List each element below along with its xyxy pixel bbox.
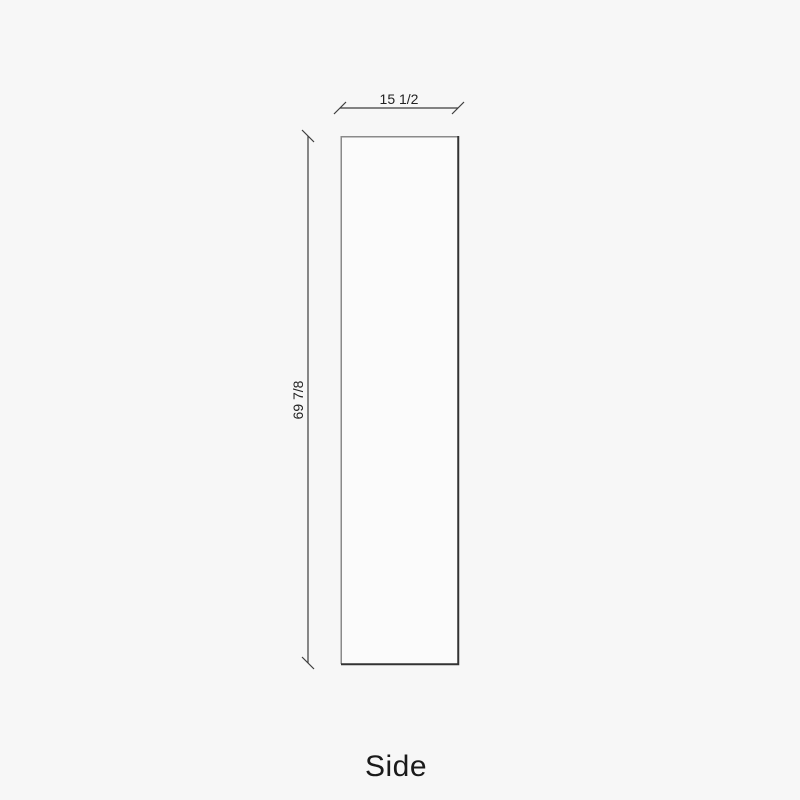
technical-drawing: 15 1/2 69 7/8 Side xyxy=(0,0,800,800)
height-dimension-label: 69 7/8 xyxy=(290,380,306,419)
view-title: Side xyxy=(365,750,427,783)
width-dimension-label: 15 1/2 xyxy=(380,91,419,107)
drawing-canvas: 15 1/2 69 7/8 Side xyxy=(0,0,800,800)
panel-face xyxy=(342,137,458,664)
